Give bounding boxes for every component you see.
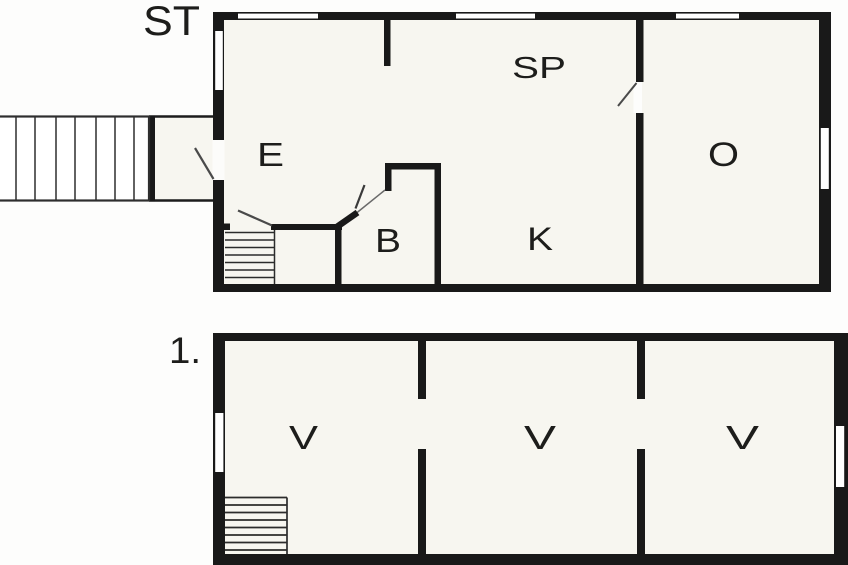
svg-text:V: V (289, 419, 318, 456)
svg-text:V: V (726, 419, 759, 456)
svg-text:ST: ST (143, 0, 200, 44)
svg-text:E: E (257, 136, 284, 173)
svg-text:B: B (375, 222, 401, 259)
svg-text:SP: SP (512, 50, 566, 85)
svg-text:O: O (708, 136, 739, 174)
svg-text:K: K (527, 221, 553, 257)
svg-text:1.: 1. (169, 330, 201, 371)
svg-text:V: V (524, 419, 556, 456)
